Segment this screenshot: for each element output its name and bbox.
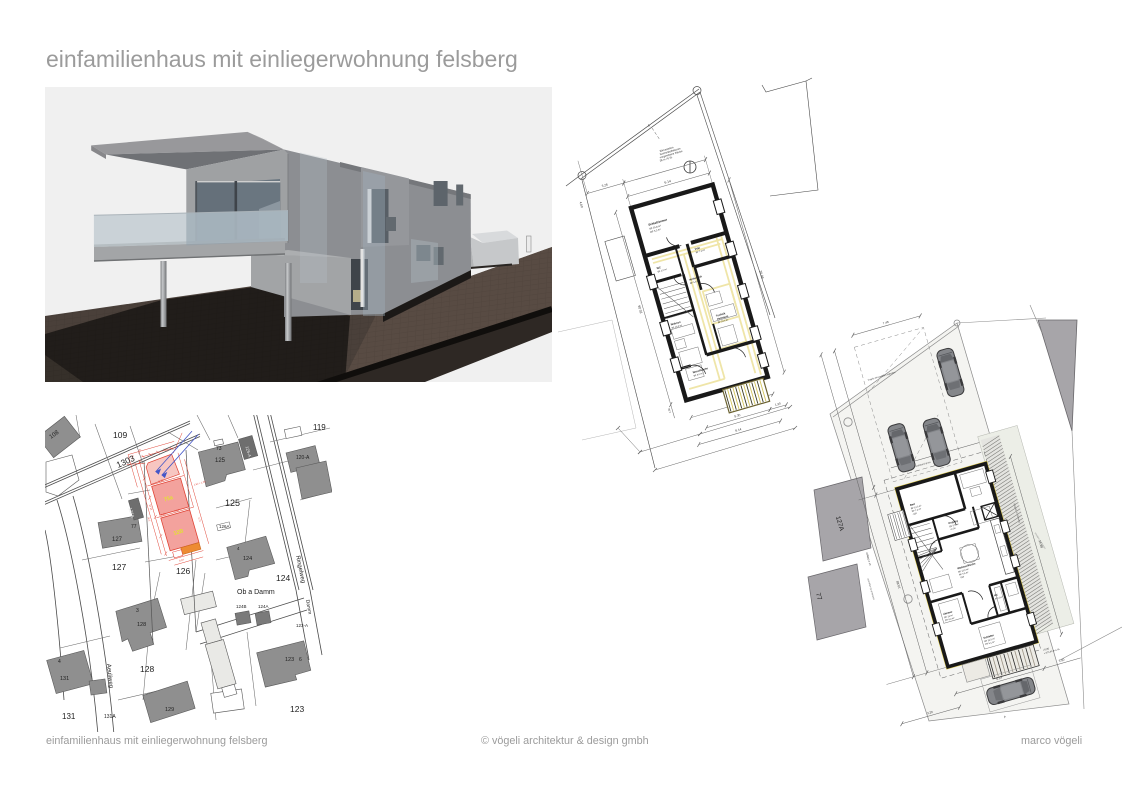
svg-text:124: 124 — [276, 573, 290, 583]
svg-text:124B: 124B — [236, 604, 247, 609]
svg-text:6.14: 6.14 — [735, 427, 742, 433]
svg-text:77: 77 — [131, 524, 137, 530]
svg-text:20.06: 20.06 — [758, 270, 764, 279]
svg-text:125: 125 — [215, 458, 226, 464]
svg-text:131: 131 — [62, 712, 76, 721]
svg-text:109: 109 — [113, 430, 127, 440]
svg-text:6: 6 — [299, 657, 302, 663]
svg-text:4: 4 — [58, 659, 61, 665]
svg-text:5.30: 5.30 — [734, 413, 741, 419]
svg-text:131A: 131A — [104, 714, 116, 720]
svg-text:6.14: 6.14 — [664, 179, 672, 185]
svg-text:10.35: 10.35 — [138, 448, 141, 455]
svg-text:129: 129 — [165, 707, 174, 713]
svg-text:124A: 124A — [258, 604, 269, 609]
svg-text:125: 125 — [225, 498, 240, 508]
svg-text:Unterlauf ofü sägezahl: Unterlauf ofü sägezahl — [866, 578, 875, 600]
svg-text:1.00: 1.00 — [667, 407, 672, 413]
svg-text:0.72: 0.72 — [197, 517, 200, 522]
svg-text:1.20: 1.20 — [774, 401, 781, 407]
svg-text:3.50: 3.50 — [1058, 657, 1065, 663]
svg-text:131: 131 — [60, 676, 69, 682]
svg-text:124: 124 — [243, 556, 252, 562]
svg-text:3.26: 3.26 — [601, 183, 608, 189]
svg-text:Ob a Damm: Ob a Damm — [237, 589, 275, 596]
svg-text:73: 73 — [216, 446, 222, 452]
svg-text:6.94: 6.94 — [179, 558, 185, 562]
svg-text:4.60: 4.60 — [578, 201, 584, 208]
svg-text:119: 119 — [313, 423, 326, 432]
svg-text:7.48: 7.48 — [882, 320, 889, 326]
svg-text:126: 126 — [176, 566, 190, 576]
svg-text:127: 127 — [112, 537, 123, 543]
svg-text:1.52 + 1.50: 1.52 + 1.50 — [194, 480, 207, 486]
svg-text:120-A: 120-A — [296, 455, 310, 461]
svg-text:Damm: Damm — [304, 599, 312, 615]
svg-text:123-A: 123-A — [296, 623, 308, 628]
svg-text:3: 3 — [136, 608, 139, 614]
svg-text:128: 128 — [137, 622, 146, 628]
svg-text:128: 128 — [140, 664, 154, 674]
svg-text:123: 123 — [290, 704, 304, 714]
svg-text:A: A — [1003, 714, 1008, 719]
svg-text:123: 123 — [285, 657, 294, 663]
svg-text:Ringelweg: Ringelweg — [294, 555, 306, 584]
svg-text:127: 127 — [112, 562, 126, 572]
svg-text:Aeuliweg: Aeuliweg — [105, 664, 114, 689]
